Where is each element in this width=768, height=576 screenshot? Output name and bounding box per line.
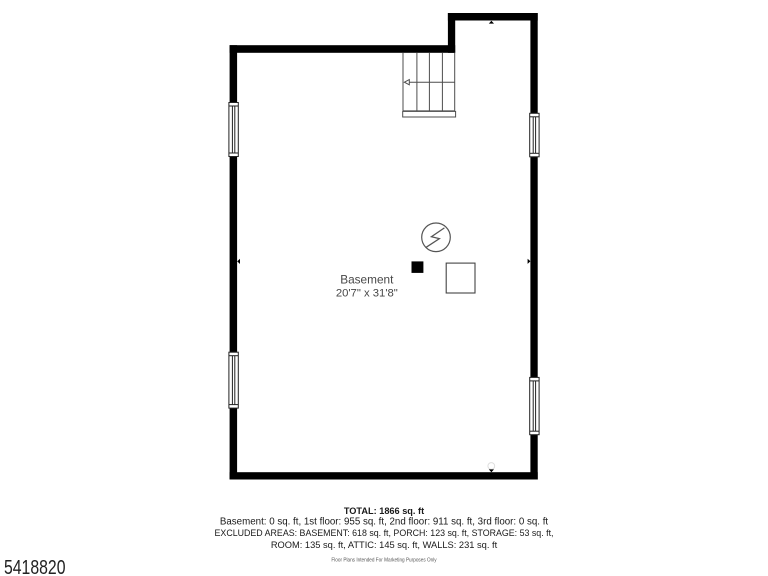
svg-text:Basement: Basement: [340, 273, 394, 287]
svg-text:Basement: 0 sq. ft, 1st floor:: Basement: 0 sq. ft, 1st floor: 955 sq. f…: [220, 517, 549, 528]
svg-text:5418820: 5418820: [4, 556, 65, 576]
svg-text:TOTAL: 1866 sq. ft: TOTAL: 1866 sq. ft: [344, 506, 424, 516]
svg-text:20'7" x 31'8": 20'7" x 31'8": [336, 288, 398, 300]
svg-text:Floor Plans Intended For Marke: Floor Plans Intended For Marketing Purpo…: [331, 557, 437, 563]
svg-text:EXCLUDED AREAS: BASEMENT: 618: EXCLUDED AREAS: BASEMENT: 618 sq. ft, PO…: [215, 528, 554, 538]
svg-text:ROOM: 135 sq. ft, ATTIC: 145 s: ROOM: 135 sq. ft, ATTIC: 145 sq. ft, WAL…: [271, 540, 498, 550]
